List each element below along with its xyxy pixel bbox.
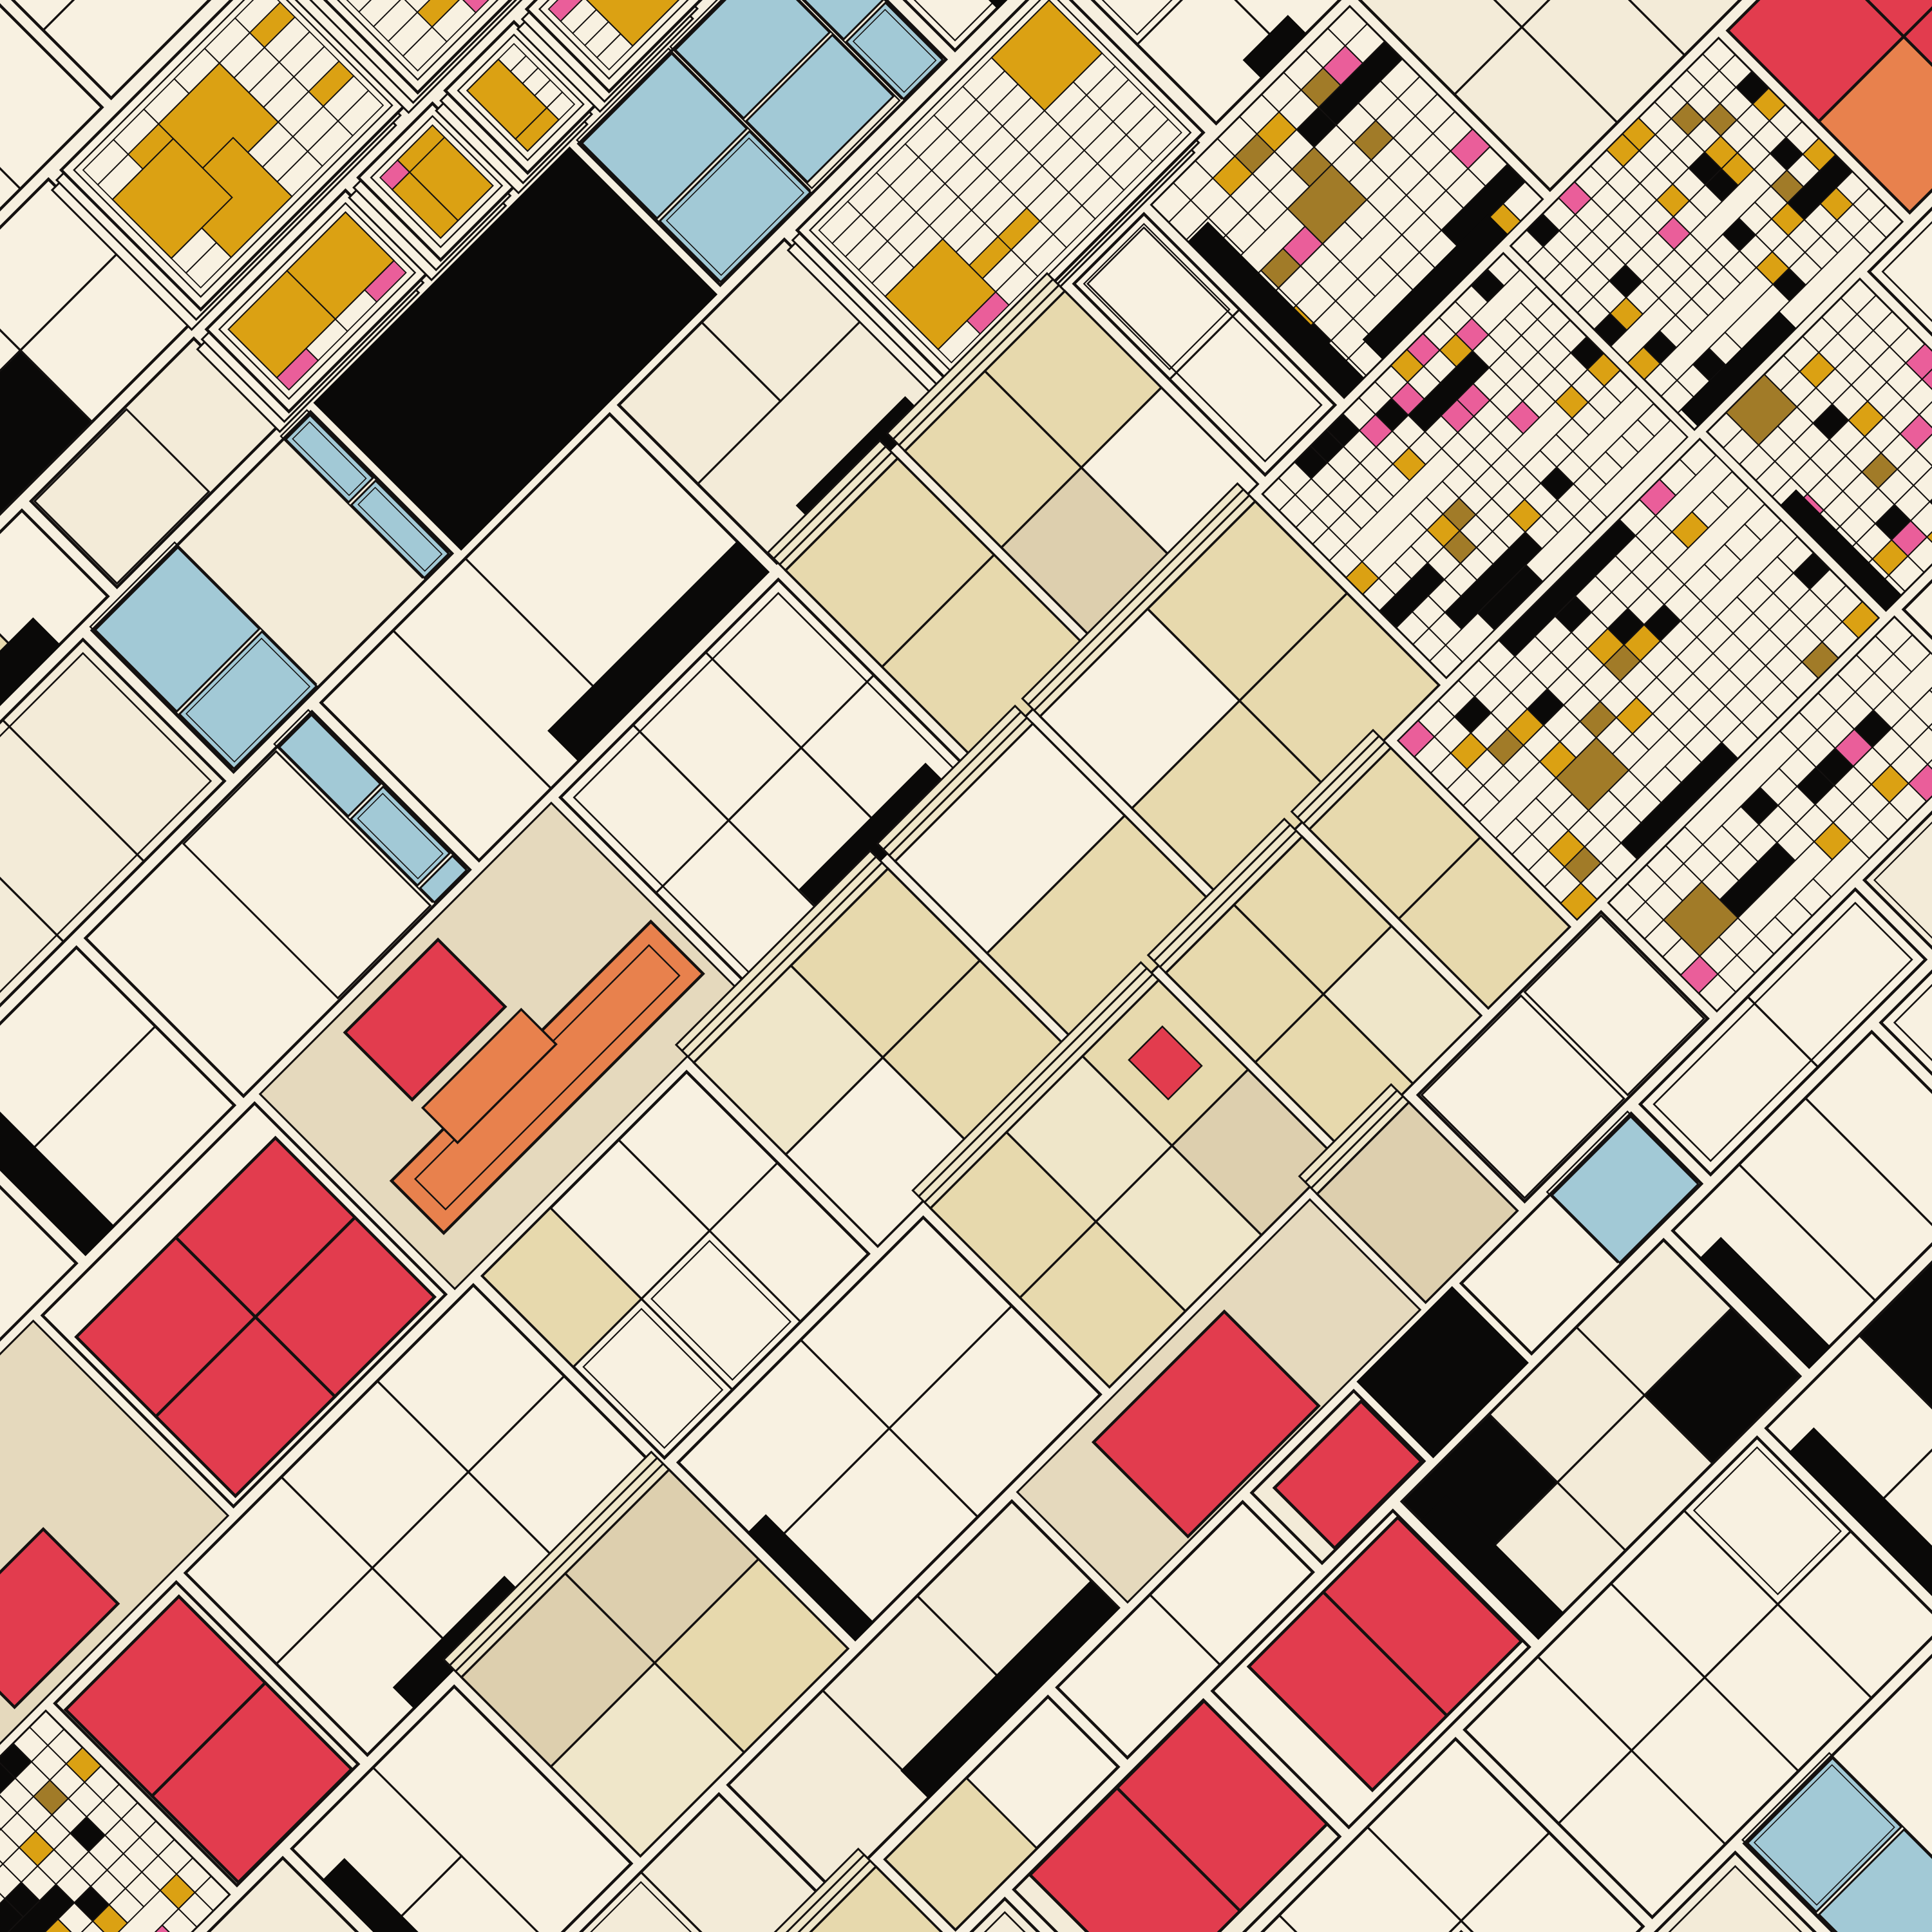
artwork-canvas (0, 0, 1932, 1932)
generative-artwork (0, 0, 1932, 1932)
rotated-plane (0, 0, 1932, 1932)
